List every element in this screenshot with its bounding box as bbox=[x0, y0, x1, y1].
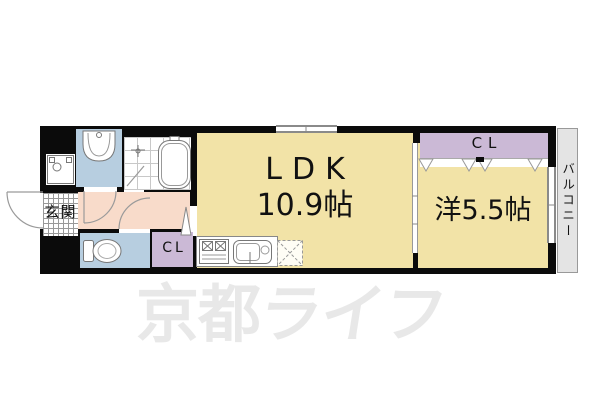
kitchen-counter bbox=[196, 236, 278, 267]
watermark-katakana: ライフ bbox=[253, 264, 453, 355]
washroom-area bbox=[76, 129, 122, 187]
closet-bottom-label: CL bbox=[152, 241, 193, 256]
washing-machine-niche bbox=[46, 154, 75, 185]
window-balcony bbox=[547, 167, 556, 243]
closet-top-label: CL bbox=[420, 136, 548, 152]
entrance-label: 玄関 bbox=[43, 205, 78, 221]
hallway-area bbox=[78, 192, 190, 229]
watermark-kanji: 京都 bbox=[136, 278, 260, 351]
window-top bbox=[276, 125, 337, 133]
ldk-label: LDK bbox=[197, 154, 413, 186]
ldk-size-label: 10.9帖 bbox=[197, 190, 413, 222]
floorplan-image: 京都ライフ bbox=[0, 0, 600, 400]
closet-folding-door-strip bbox=[420, 158, 548, 167]
balcony-label: バルコニー bbox=[556, 128, 579, 273]
wall-bottom bbox=[40, 268, 556, 274]
toilet-area bbox=[80, 233, 150, 268]
western-room-label: 洋5.5帖 bbox=[418, 197, 548, 225]
watermark-text: 京都ライフ bbox=[136, 264, 446, 355]
bathroom-area bbox=[124, 137, 191, 190]
